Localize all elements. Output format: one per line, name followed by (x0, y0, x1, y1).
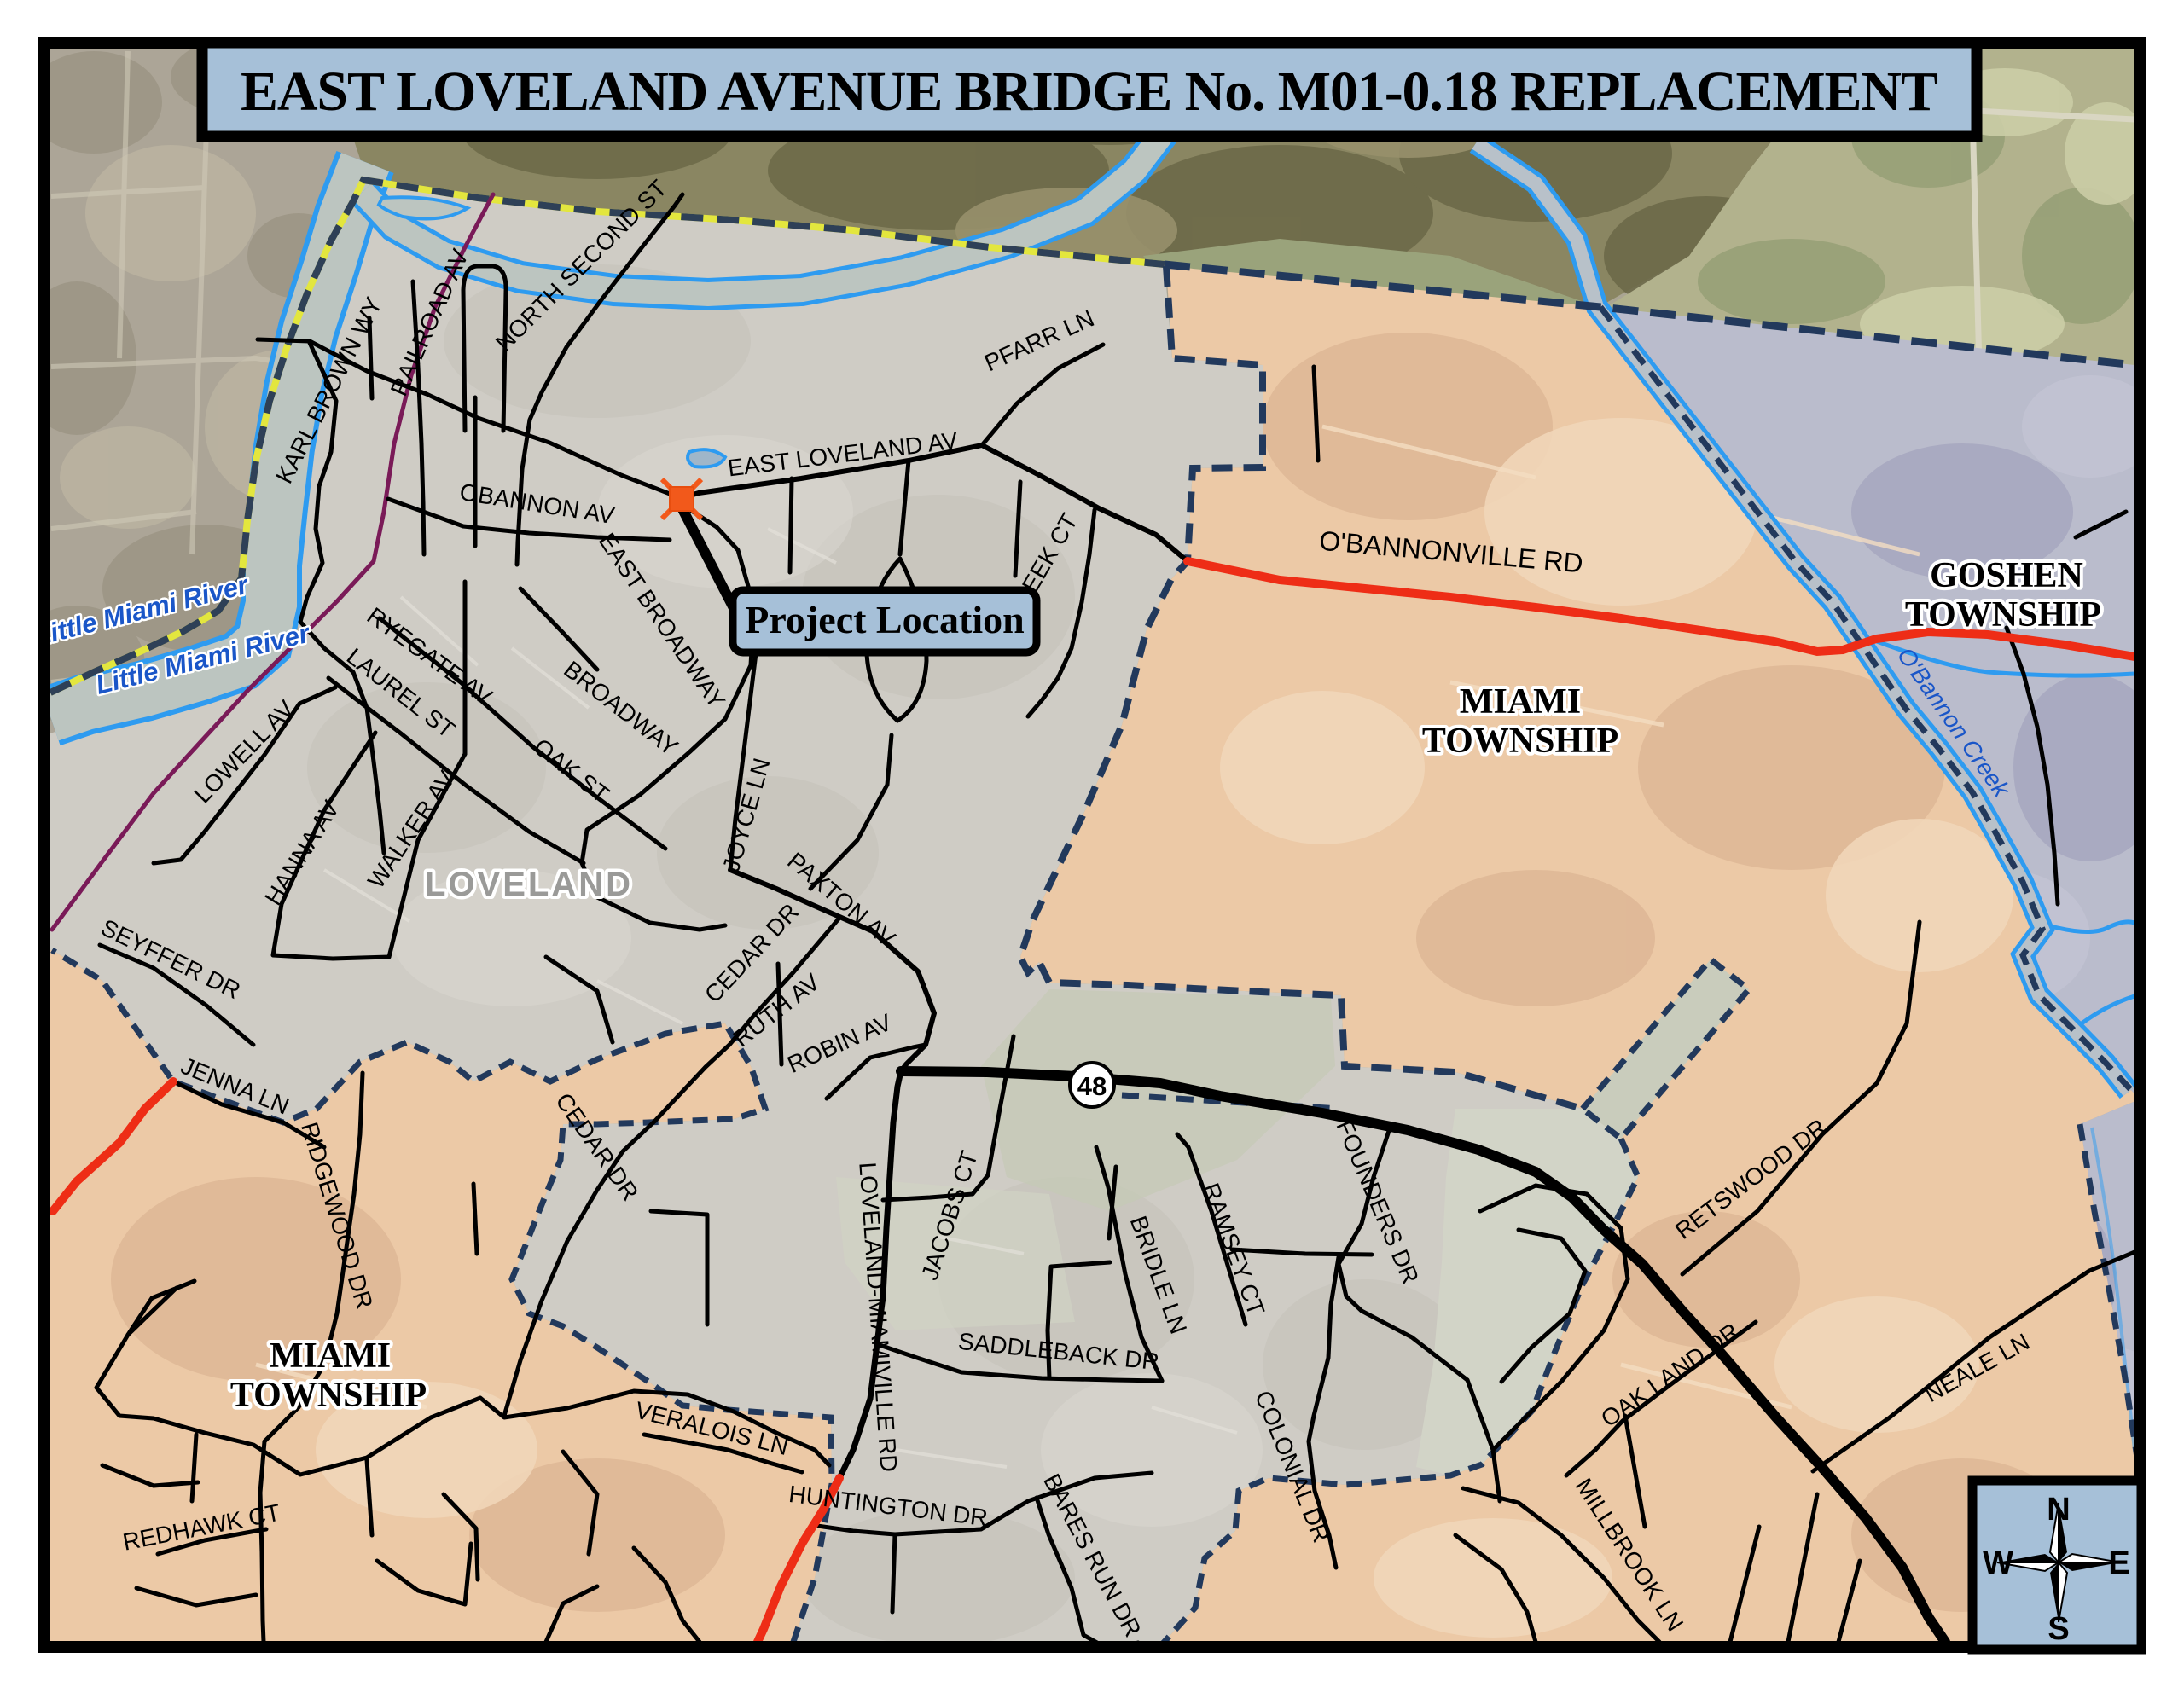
svg-text:Project Location: Project Location (745, 598, 1024, 641)
svg-text:EAST LOVELAND AVENUE BRIDGE No: EAST LOVELAND AVENUE BRIDGE No. M01-0.18… (241, 61, 1938, 123)
svg-text:LOVELAND: LOVELAND (425, 866, 633, 903)
svg-text:TOWNSHIP: TOWNSHIP (230, 1376, 427, 1415)
svg-text:48: 48 (1077, 1071, 1107, 1101)
svg-text:GOSHEN: GOSHEN (1930, 556, 2083, 595)
svg-text:N: N (2047, 1492, 2070, 1528)
svg-text:TOWNSHIP: TOWNSHIP (1905, 595, 2101, 635)
svg-text:E: E (2108, 1545, 2129, 1581)
svg-text:TOWNSHIP: TOWNSHIP (1422, 722, 1618, 761)
svg-text:W: W (1983, 1545, 2013, 1581)
svg-text:S: S (2047, 1611, 2069, 1647)
svg-text:MIAMI: MIAMI (1460, 682, 1581, 722)
svg-text:MIAMI: MIAMI (270, 1336, 391, 1376)
